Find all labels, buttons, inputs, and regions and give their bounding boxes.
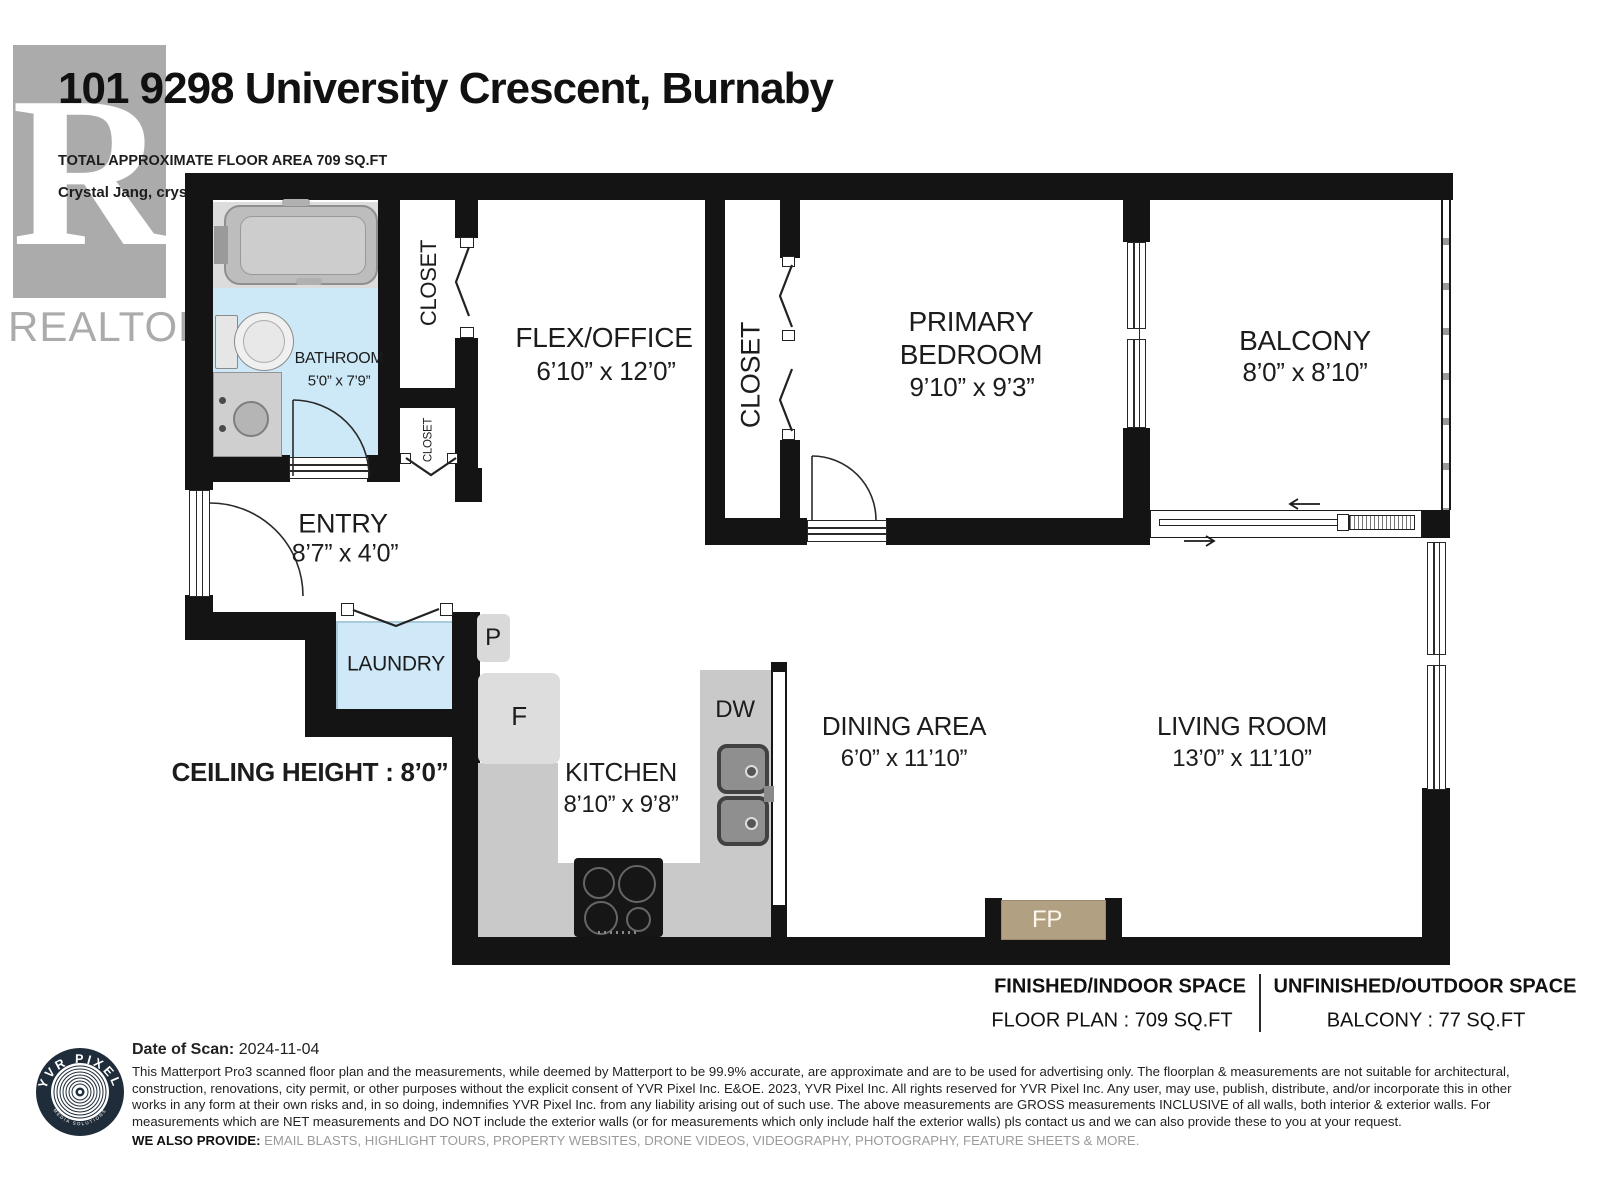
- entry-dims: 8’7” x 4’0”: [292, 542, 398, 567]
- primary-bedroom-line1: PRIMARY: [909, 308, 1034, 336]
- bedroom-window-mullion: [1127, 328, 1146, 340]
- wall-bath-bottom-left: [198, 455, 290, 482]
- closet-upper-label: CLOSET: [418, 240, 440, 326]
- kitchen-label: KITCHEN: [565, 759, 677, 785]
- bedcloset-bifold-frame-top: [782, 256, 795, 267]
- dishwasher-label: DW: [715, 698, 754, 722]
- burner-1: [583, 867, 615, 899]
- living-room-window: [1427, 542, 1446, 790]
- sliding-fixed-panel: [1349, 515, 1415, 530]
- vanity-sink: [233, 401, 269, 437]
- stove-controls: [598, 931, 640, 934]
- wall-sliding-corner: [1422, 510, 1450, 538]
- flex-office-label: FLEX/OFFICE: [515, 324, 692, 352]
- wall-entry-bottom: [185, 612, 313, 640]
- wall-balcony-top: [1123, 198, 1150, 242]
- primary-bedroom-line2: BEDROOM: [900, 341, 1043, 369]
- bedroom-closet-label: CLOSET: [738, 322, 765, 428]
- bedroom-door-swing: [812, 456, 876, 520]
- kitchen-dims: 8’10” x 9’8”: [563, 793, 678, 817]
- balcony-railing: [1441, 200, 1451, 510]
- wall-closet2-right: [455, 408, 478, 468]
- disclaimer-text: This Matterport Pro3 scanned floor plan …: [132, 1064, 1544, 1130]
- wall-closet1-right-bottom: [455, 338, 478, 390]
- kitchen-sink-upper: [717, 744, 769, 794]
- bedcloset-bifold-frame-bottom: [782, 429, 795, 440]
- fridge-label: F: [511, 703, 527, 729]
- wall-bedroom-bottom-right: [886, 518, 1150, 545]
- bathroom-label: BATHROOM: [295, 351, 384, 367]
- tub-handle-top: [282, 199, 310, 206]
- finished-space-value: FLOOR PLAN : 709 SQ.FT: [991, 1010, 1232, 1033]
- ceiling-height-note: CEILING HEIGHT : 8’0”: [172, 759, 449, 785]
- we-also-provide-line: WE ALSO PROVIDE: EMAIL BLASTS, HIGHLIGHT…: [132, 1133, 1544, 1150]
- entry-label: ENTRY: [298, 511, 388, 538]
- dining-label: DINING AREA: [822, 713, 986, 739]
- bathroom-door-sill: [289, 457, 369, 479]
- balcony-sliding-door: [1150, 510, 1422, 538]
- entry-door-jamb: [189, 490, 210, 597]
- we-also-provide-label: WE ALSO PROVIDE:: [132, 1133, 260, 1148]
- wall-closet1-right-top: [455, 198, 478, 238]
- balcony-dims: 8’0” x 8’10”: [1242, 359, 1367, 385]
- dining-dims: 6’0” x 11’10”: [841, 747, 967, 771]
- wall-flex-bedroom: [705, 198, 725, 545]
- pantry-label: P: [485, 626, 501, 650]
- bathtub-basin: [240, 216, 366, 275]
- tub-faucet: [214, 226, 228, 264]
- wall-balcony-bottom: [1123, 428, 1150, 545]
- unfinished-space-value: BALCONY : 77 SQ.FT: [1327, 1010, 1526, 1033]
- wall-closet2-corner: [455, 468, 482, 502]
- bedroom-door-sill: [807, 520, 887, 542]
- toilet-seat: [243, 320, 285, 363]
- sliding-panel: [1159, 519, 1341, 526]
- flex-office-dims: 6’10” x 12’0”: [536, 358, 675, 384]
- wall-bedroom-bottom-left: [725, 518, 807, 545]
- closet2-bifold-frame-left: [400, 453, 411, 464]
- wall-closet-divider: [378, 388, 478, 408]
- fireplace-stub-left: [985, 898, 1002, 940]
- laundry-label: LAUNDRY: [347, 654, 445, 675]
- laundry-bifold-frame-left: [341, 603, 354, 616]
- slide-arrow-left: [1290, 499, 1320, 509]
- fireplace-label: FP: [1032, 908, 1062, 932]
- scan-date-line: Date of Scan: 2024-11-04: [132, 1042, 319, 1059]
- laundry-bifold-frame-right: [440, 603, 453, 616]
- toilet-bowl: [234, 312, 294, 371]
- burner-3: [584, 901, 618, 935]
- stove: [574, 858, 663, 937]
- scan-date-value: 2024-11-04: [239, 1041, 320, 1058]
- bedcloset-bifold-frame-mid: [782, 330, 795, 341]
- kitchen-sink-lower: [717, 796, 769, 846]
- closet1-bifold-frame-bottom: [460, 327, 474, 338]
- floor-plan-page: R REALTOR® 101 9298 University Crescent,…: [0, 0, 1600, 1200]
- closet-small-label: CLOSET: [423, 418, 435, 462]
- living-window-mullion: [1427, 654, 1446, 666]
- wall-bar-bottom-cap: [771, 903, 787, 937]
- wall-bedcloset-right-top: [780, 198, 800, 258]
- unfinished-space-heading: UNFINISHED/OUTDOOR SPACE: [1274, 976, 1577, 999]
- page-title: 101 9298 University Crescent, Burnaby: [58, 64, 833, 114]
- bedcloset-bifold-lower: [780, 369, 792, 431]
- bedroom-window: [1127, 242, 1146, 428]
- entry-door-swing: [210, 503, 303, 596]
- sink-faucet: [764, 786, 774, 802]
- closet2-bifold-frame-right: [447, 453, 458, 464]
- scan-date-label: Date of Scan:: [132, 1041, 234, 1058]
- primary-bedroom-dims: 9’10” x 9’3”: [909, 374, 1034, 400]
- floor-area-subtitle: TOTAL APPROXIMATE FLOOR AREA 709 SQ.FT: [58, 153, 387, 169]
- closet1-bifold-frame-top: [460, 237, 474, 248]
- summary-divider: [1259, 974, 1261, 1032]
- sliding-gap-box: [1337, 514, 1349, 531]
- closet1-bifold: [456, 247, 469, 316]
- wall-left-upper: [185, 173, 213, 490]
- we-also-provide-list: EMAIL BLASTS, HIGHLIGHT TOURS, PROPERTY …: [264, 1133, 1139, 1148]
- bathtub: [224, 205, 378, 285]
- balcony-label: BALCONY: [1239, 327, 1371, 355]
- finished-space-heading: FINISHED/INDOOR SPACE: [994, 976, 1246, 999]
- vanity-faucet-dot2: [219, 425, 226, 432]
- tub-handle-bottom: [296, 278, 322, 285]
- bathroom-vanity: [213, 372, 282, 457]
- bedcloset-bifold-upper: [780, 265, 792, 327]
- vanity-faucet-dot1: [219, 397, 226, 404]
- fireplace-stub-right: [1105, 898, 1122, 940]
- wall-top: [185, 173, 1453, 200]
- burner-4: [626, 907, 651, 932]
- sink-drain: [745, 765, 758, 778]
- wall-bottom: [452, 937, 1450, 965]
- wall-kitchen-left: [452, 612, 480, 965]
- bathroom-dims: 5’0” x 7’9”: [308, 374, 371, 389]
- wall-bath-closet: [378, 200, 400, 482]
- burner-2: [618, 865, 656, 903]
- wall-living-right: [1422, 788, 1450, 965]
- sink-drain: [745, 817, 758, 830]
- living-label: LIVING ROOM: [1157, 713, 1327, 739]
- living-dims: 13’0” x 11’10”: [1172, 747, 1311, 771]
- yvr-pixel-logo: YVR PIXEL MEDIA SOLUTIONS: [34, 1046, 126, 1138]
